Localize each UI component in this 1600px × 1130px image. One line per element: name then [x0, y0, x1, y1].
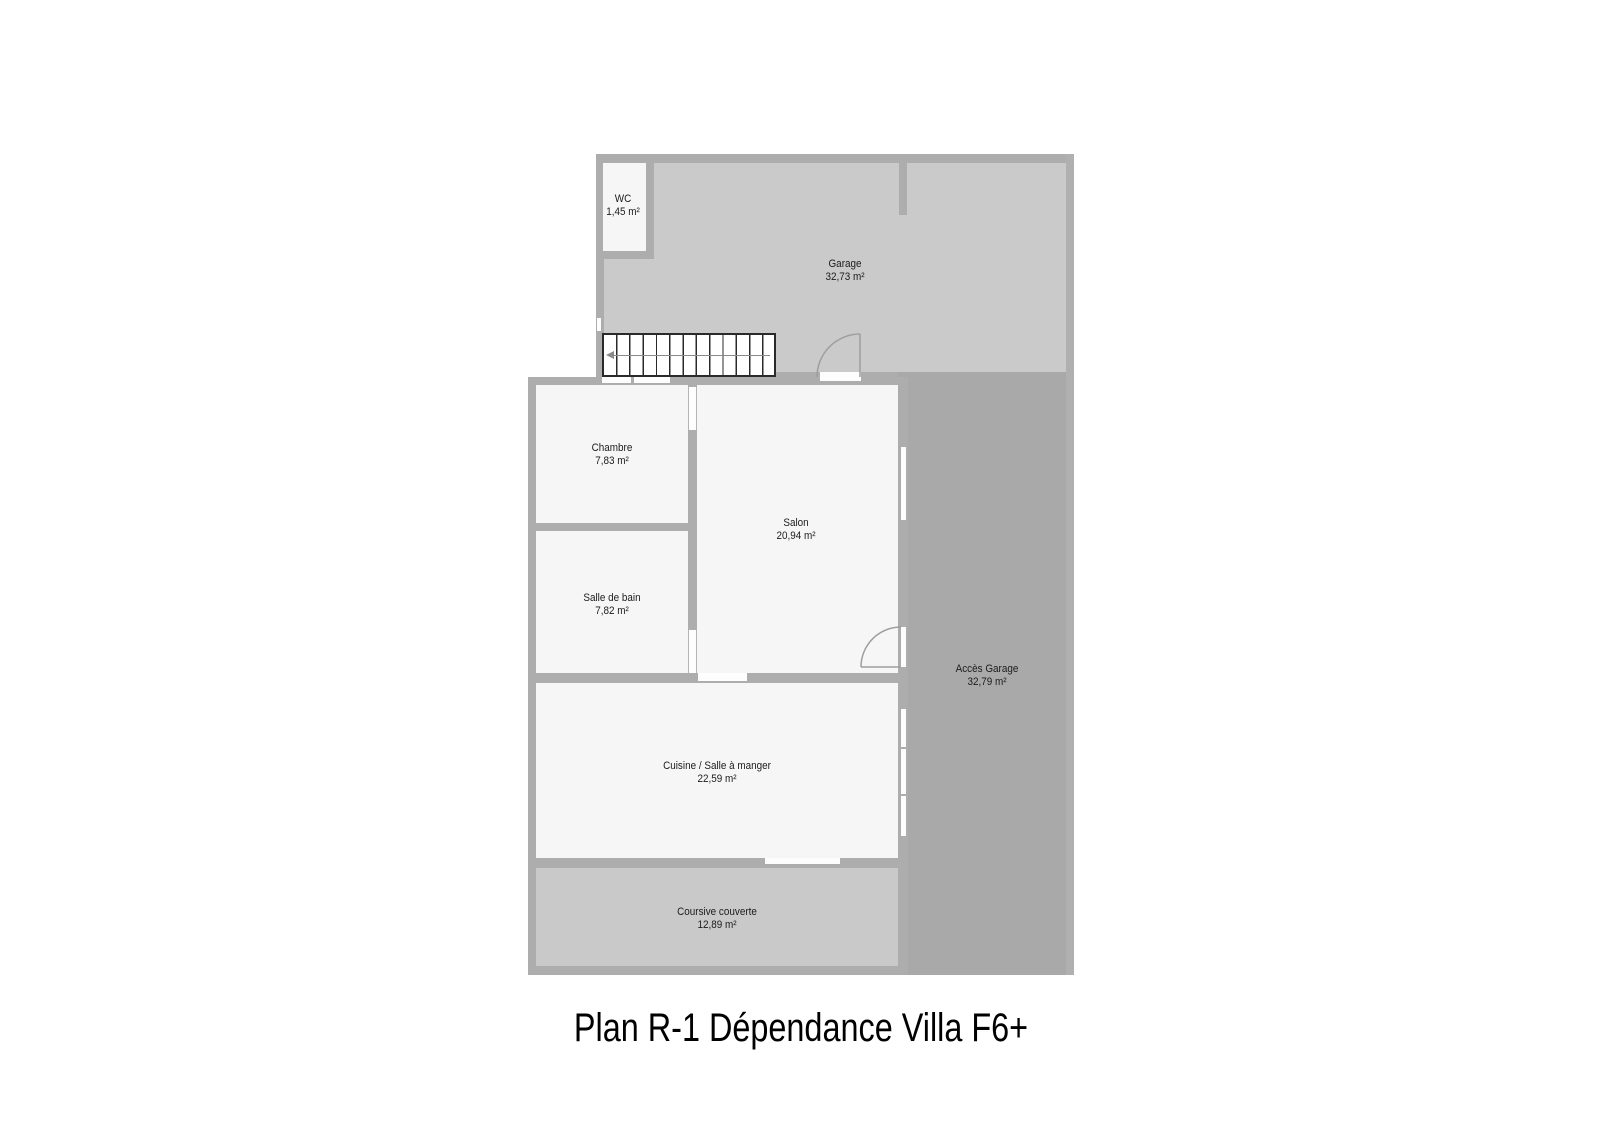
coursive-sliding-opening	[765, 858, 840, 864]
outer-wall-right	[1066, 154, 1074, 975]
stairs-walkline	[610, 355, 770, 356]
door-opening-salle-de-bain	[688, 630, 697, 673]
garage-wall-stub	[899, 163, 907, 215]
door-opening-chambre	[688, 387, 697, 430]
room-area: 22,59 m²	[663, 773, 771, 786]
room-area: 20,94 m²	[776, 530, 815, 543]
window-cuisine	[901, 709, 906, 836]
room-name: Salle de bain	[583, 592, 640, 605]
room-area: 1,45 m²	[606, 206, 640, 219]
room-area: 7,82 m²	[583, 605, 640, 618]
room-label-wc: WC 1,45 m²	[606, 193, 640, 219]
room-area: 32,73 m²	[825, 271, 864, 284]
room-area: 12,89 m²	[677, 919, 757, 932]
room-name: Salon	[776, 517, 815, 530]
window-cuisine-mullion-1	[901, 747, 906, 749]
room-name: WC	[606, 193, 640, 206]
room-area: 7,83 m²	[592, 455, 633, 468]
room-name: Accès Garage	[956, 663, 1019, 676]
room-name: Chambre	[592, 442, 633, 455]
room-label-coursive: Coursive couverte 12,89 m²	[677, 906, 757, 932]
room-name: Garage	[825, 258, 864, 271]
room-label-salle-de-bain: Salle de bain 7,82 m²	[583, 592, 640, 618]
room-label-acces-garage: Accès Garage 32,79 m²	[956, 663, 1019, 689]
room-label-garage: Garage 32,73 m²	[825, 258, 864, 284]
room-label-salon: Salon 20,94 m²	[776, 517, 815, 543]
room-name: Cuisine / Salle à manger	[663, 760, 771, 773]
room-label-cuisine: Cuisine / Salle à manger 22,59 m²	[663, 760, 771, 786]
salon-door-arc	[861, 627, 902, 668]
window-cuisine-mullion-2	[901, 794, 906, 796]
garage-left-wall-slit	[597, 318, 601, 331]
garage-door-arc	[817, 334, 861, 378]
window-salon	[901, 447, 906, 520]
room-label-chambre: Chambre 7,83 m²	[592, 442, 633, 468]
stairwell-opening-left	[602, 377, 631, 383]
room-area: 32,79 m²	[956, 676, 1019, 689]
room-name: Coursive couverte	[677, 906, 757, 919]
stairwell-opening-right	[634, 377, 670, 383]
stairs-direction-arrow-icon	[606, 351, 614, 359]
door-opening-cuisine	[698, 673, 747, 683]
plan-title: Plan R-1 Dépendance Villa F6+	[574, 1006, 1028, 1051]
